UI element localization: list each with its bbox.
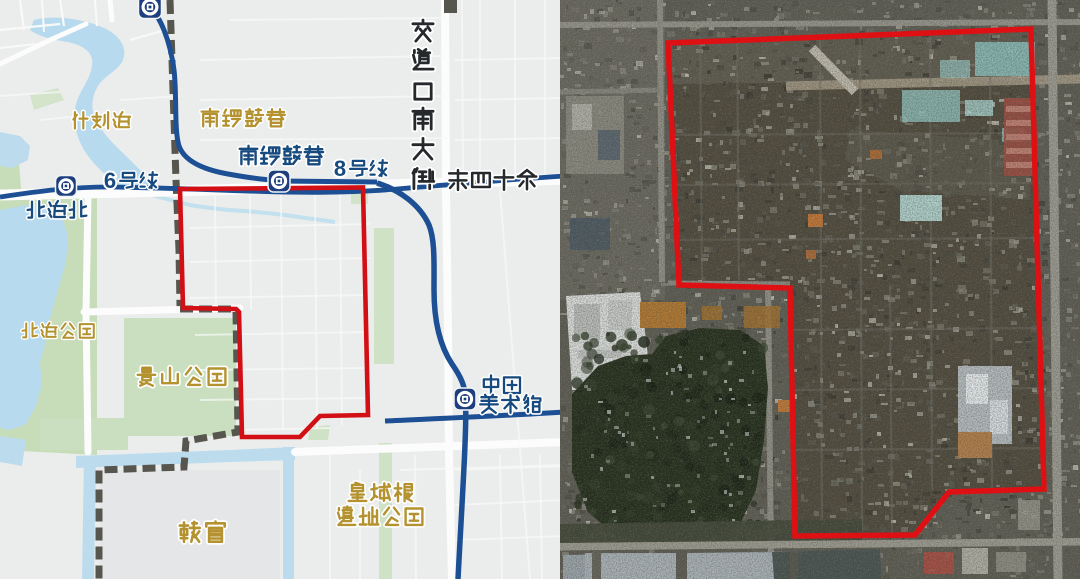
svg-text:6: 6 xyxy=(104,168,116,193)
svg-text:8: 8 xyxy=(334,156,346,181)
